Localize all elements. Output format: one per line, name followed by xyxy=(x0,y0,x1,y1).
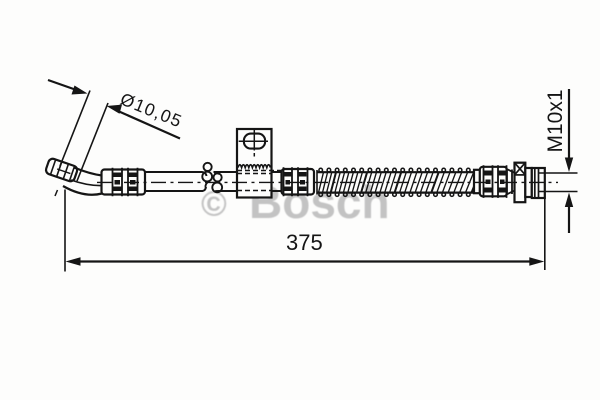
svg-text:375: 375 xyxy=(286,230,323,255)
svg-text:M10x1: M10x1 xyxy=(544,89,567,152)
